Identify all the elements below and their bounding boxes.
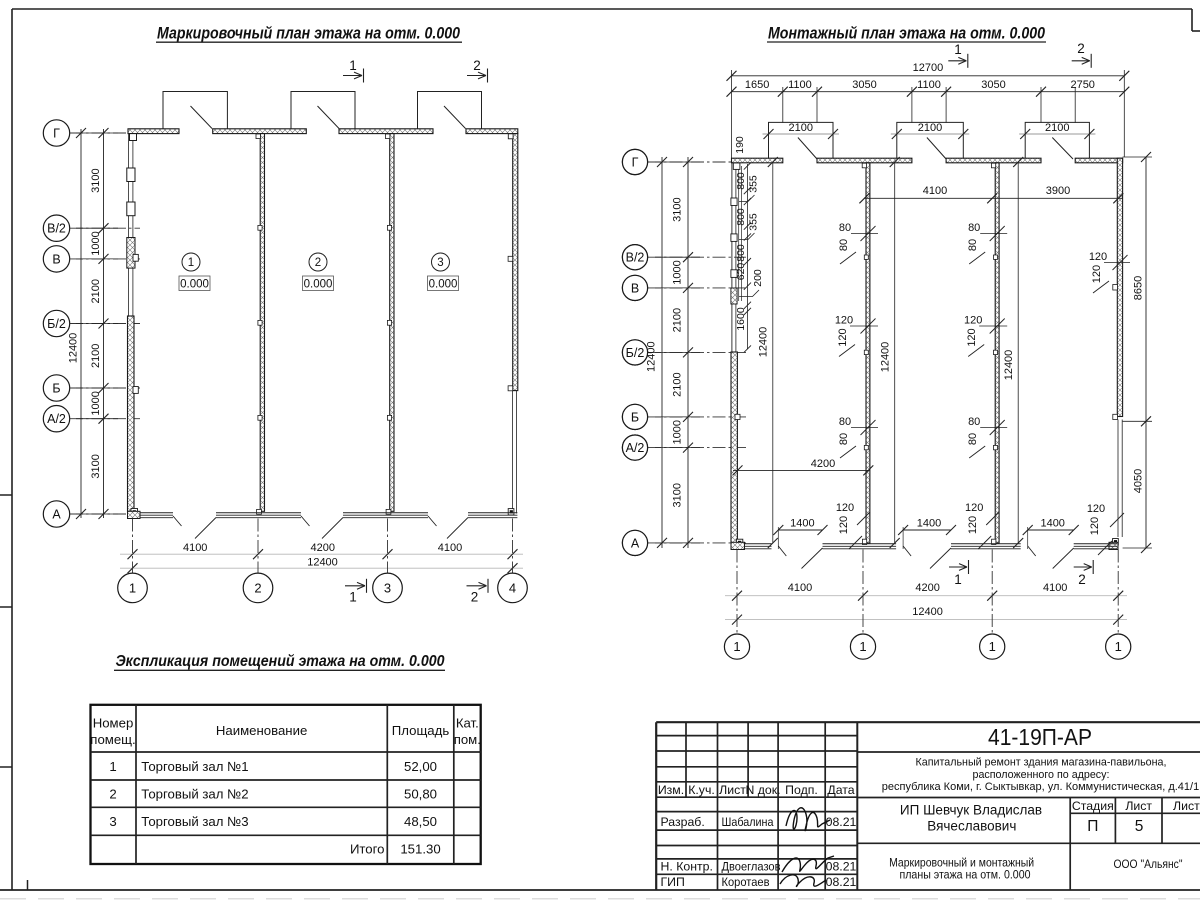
svg-text:120: 120 — [964, 315, 982, 327]
svg-text:08.21: 08.21 — [826, 860, 857, 874]
svg-text:2100: 2100 — [672, 308, 684, 332]
svg-text:120: 120 — [1091, 265, 1103, 283]
svg-text:Б: Б — [52, 381, 60, 395]
svg-text:Шабалина: Шабалина — [722, 815, 774, 829]
svg-text:8650: 8650 — [1133, 276, 1145, 300]
svg-text:08.21: 08.21 — [826, 815, 857, 829]
svg-text:3100: 3100 — [90, 454, 102, 478]
svg-text:1000: 1000 — [672, 420, 684, 444]
svg-text:Изм.: Изм. — [658, 783, 684, 797]
svg-text:5: 5 — [1135, 818, 1144, 835]
svg-text:2: 2 — [1078, 572, 1086, 587]
svg-text:Монтажный план этажа на отм. 0: Монтажный план этажа на отм. 0.000 — [768, 25, 1046, 43]
svg-text:80: 80 — [839, 222, 851, 234]
svg-text:1600: 1600 — [735, 307, 747, 331]
svg-text:1000: 1000 — [90, 231, 102, 255]
svg-text:Коротаев: Коротаев — [722, 875, 770, 889]
svg-text:80: 80 — [839, 416, 851, 428]
svg-text:А: А — [52, 507, 61, 521]
svg-text:120: 120 — [965, 502, 983, 514]
svg-text:Площадь: Площадь — [392, 723, 450, 738]
svg-text:3900: 3900 — [1046, 185, 1070, 197]
svg-text:Стадия: Стадия — [1072, 799, 1114, 813]
svg-text:Дата: Дата — [827, 783, 854, 797]
svg-text:2100: 2100 — [90, 279, 102, 303]
svg-text:2: 2 — [1077, 41, 1085, 56]
svg-text:52,00: 52,00 — [404, 759, 437, 774]
svg-text:Наименование: Наименование — [216, 723, 307, 738]
svg-text:1: 1 — [954, 42, 962, 57]
svg-text:А/2: А/2 — [47, 412, 66, 426]
svg-text:Б/2: Б/2 — [47, 317, 66, 331]
svg-text:80: 80 — [967, 433, 979, 445]
svg-text:республика Коми, г. Сыктывкар,: республика Коми, г. Сыктывкар, ул. Комму… — [882, 781, 1199, 793]
svg-text:4100: 4100 — [438, 542, 462, 554]
svg-text:120: 120 — [1087, 503, 1105, 515]
svg-text:2: 2 — [473, 58, 481, 73]
svg-text:Подп.: Подп. — [785, 783, 818, 797]
svg-text:120: 120 — [837, 328, 849, 346]
svg-text:2100: 2100 — [672, 372, 684, 396]
svg-text:4100: 4100 — [923, 185, 947, 197]
svg-text:В/2: В/2 — [47, 222, 66, 236]
svg-text:1400: 1400 — [1040, 518, 1064, 530]
svg-text:1: 1 — [733, 639, 740, 654]
svg-text:200: 200 — [752, 269, 764, 287]
svg-text:расположенного по адресу:: расположенного по адресу: — [973, 769, 1110, 781]
svg-text:800: 800 — [735, 208, 747, 226]
svg-text:Двоеглазов: Двоеглазов — [722, 860, 781, 874]
svg-text:4050: 4050 — [1133, 469, 1145, 493]
svg-text:Экспликация помещений этажа на: Экспликация помещений этажа на отм. 0.00… — [116, 653, 445, 670]
svg-text:2100: 2100 — [789, 122, 813, 134]
svg-text:3: 3 — [109, 814, 116, 829]
svg-text:Номер: Номер — [93, 716, 134, 731]
svg-text:12400: 12400 — [758, 327, 770, 358]
svg-text:08.21: 08.21 — [826, 875, 857, 889]
svg-text:620: 620 — [735, 263, 747, 281]
svg-text:3100: 3100 — [672, 197, 684, 221]
svg-text:12400: 12400 — [1003, 350, 1015, 381]
svg-text:151.30: 151.30 — [400, 842, 440, 857]
svg-text:2: 2 — [109, 786, 116, 801]
svg-text:планы этажа на отм. 0.000: планы этажа на отм. 0.000 — [900, 868, 1031, 882]
svg-text:120: 120 — [1089, 251, 1107, 263]
svg-text:4200: 4200 — [811, 458, 835, 470]
svg-text:1: 1 — [954, 572, 962, 587]
svg-text:Торговый зал №1: Торговый зал №1 — [141, 759, 248, 774]
svg-text:Лист: Лист — [1125, 799, 1152, 813]
svg-text:П: П — [1087, 818, 1098, 835]
svg-text:1: 1 — [109, 759, 116, 774]
svg-text:800: 800 — [735, 172, 747, 190]
svg-text:50,80: 50,80 — [404, 786, 437, 801]
svg-text:120: 120 — [1089, 517, 1101, 535]
svg-text:1: 1 — [349, 590, 357, 605]
svg-text:3: 3 — [384, 580, 391, 595]
svg-text:80: 80 — [968, 416, 980, 428]
svg-text:В/2: В/2 — [626, 251, 645, 265]
svg-text:2: 2 — [254, 580, 261, 595]
svg-text:А: А — [631, 536, 640, 550]
svg-text:80: 80 — [838, 433, 850, 445]
svg-text:А/2: А/2 — [626, 441, 645, 455]
svg-text:1400: 1400 — [917, 518, 941, 530]
svg-text:Маркировочный план этажа на от: Маркировочный план этажа на отм. 0.000 — [157, 25, 461, 43]
svg-text:Г: Г — [632, 155, 639, 169]
svg-text:1100: 1100 — [788, 79, 812, 91]
svg-text:12400: 12400 — [68, 333, 80, 364]
svg-text:80: 80 — [967, 239, 979, 251]
svg-text:Б: Б — [631, 410, 639, 424]
svg-text:1400: 1400 — [790, 518, 814, 530]
svg-text:1: 1 — [129, 580, 136, 595]
svg-text:120: 120 — [838, 516, 850, 534]
svg-text:4100: 4100 — [788, 582, 812, 594]
svg-text:ИП Шевчук Владислав: ИП Шевчук Владислав — [900, 803, 1042, 818]
svg-text:0.000: 0.000 — [180, 278, 209, 290]
svg-text:80: 80 — [838, 239, 850, 251]
svg-text:120: 120 — [967, 516, 979, 534]
svg-text:4: 4 — [509, 580, 516, 595]
svg-text:3100: 3100 — [90, 168, 102, 192]
svg-text:2100: 2100 — [1045, 122, 1069, 134]
svg-text:Н. Контр.: Н. Контр. — [661, 860, 713, 874]
svg-text:1650: 1650 — [745, 79, 769, 91]
svg-text:2750: 2750 — [1070, 79, 1094, 91]
svg-text:В: В — [52, 252, 60, 266]
svg-text:190: 190 — [734, 136, 746, 154]
svg-text:41-19П-АР: 41-19П-АР — [988, 724, 1092, 750]
svg-text:Капитальный ремонт здания мага: Капитальный ремонт здания магазина-павил… — [916, 757, 1167, 769]
svg-text:120: 120 — [835, 315, 853, 327]
svg-text:12400: 12400 — [912, 606, 943, 618]
svg-text:2: 2 — [315, 257, 321, 269]
svg-text:N док.: N док. — [745, 783, 780, 797]
svg-text:3050: 3050 — [852, 79, 876, 91]
svg-text:К.уч.: К.уч. — [688, 783, 715, 797]
svg-text:12400: 12400 — [307, 556, 338, 568]
svg-text:пом.: пом. — [454, 732, 481, 747]
svg-text:1: 1 — [859, 639, 866, 654]
svg-text:1: 1 — [989, 639, 996, 654]
svg-text:4100: 4100 — [1043, 582, 1067, 594]
svg-text:Вячеславович: Вячеславович — [927, 819, 1016, 834]
svg-text:1: 1 — [1115, 639, 1122, 654]
svg-text:2100: 2100 — [918, 122, 942, 134]
svg-text:120: 120 — [966, 328, 978, 346]
svg-text:Итого: Итого — [350, 842, 385, 857]
svg-text:355: 355 — [748, 213, 760, 231]
svg-text:Листов: Листов — [1173, 799, 1200, 813]
svg-text:0.000: 0.000 — [304, 278, 333, 290]
svg-text:Разраб.: Разраб. — [661, 815, 705, 829]
svg-text:120: 120 — [836, 502, 854, 514]
svg-text:ГИП: ГИП — [661, 875, 685, 889]
svg-text:Г: Г — [53, 126, 60, 140]
svg-text:В: В — [631, 281, 639, 295]
svg-text:1: 1 — [349, 58, 357, 73]
svg-text:2: 2 — [471, 590, 479, 605]
svg-text:1000: 1000 — [672, 260, 684, 284]
svg-text:Торговый зал №3: Торговый зал №3 — [141, 814, 248, 829]
svg-text:2100: 2100 — [90, 344, 102, 368]
svg-text:Торговый зал №2: Торговый зал №2 — [141, 786, 248, 801]
svg-text:1100: 1100 — [917, 79, 941, 91]
svg-text:80: 80 — [968, 222, 980, 234]
svg-text:355: 355 — [748, 175, 760, 193]
svg-text:4100: 4100 — [183, 542, 207, 554]
svg-text:Лист: Лист — [719, 783, 746, 797]
svg-text:12700: 12700 — [913, 62, 944, 74]
svg-text:3100: 3100 — [672, 483, 684, 507]
svg-text:4200: 4200 — [915, 582, 939, 594]
svg-text:0.000: 0.000 — [429, 278, 458, 290]
svg-text:12400: 12400 — [880, 342, 892, 373]
svg-text:1000: 1000 — [90, 391, 102, 415]
svg-text:Кат.: Кат. — [456, 716, 479, 731]
svg-text:3: 3 — [437, 257, 443, 269]
svg-text:4200: 4200 — [311, 542, 335, 554]
svg-text:3050: 3050 — [981, 79, 1005, 91]
svg-text:800: 800 — [735, 244, 747, 262]
svg-text:помещ.: помещ. — [90, 732, 135, 747]
svg-text:1: 1 — [188, 257, 194, 269]
svg-text:Б/2: Б/2 — [626, 346, 645, 360]
svg-text:48,50: 48,50 — [404, 814, 437, 829]
svg-text:ООО "Альянс": ООО "Альянс" — [1114, 857, 1183, 871]
